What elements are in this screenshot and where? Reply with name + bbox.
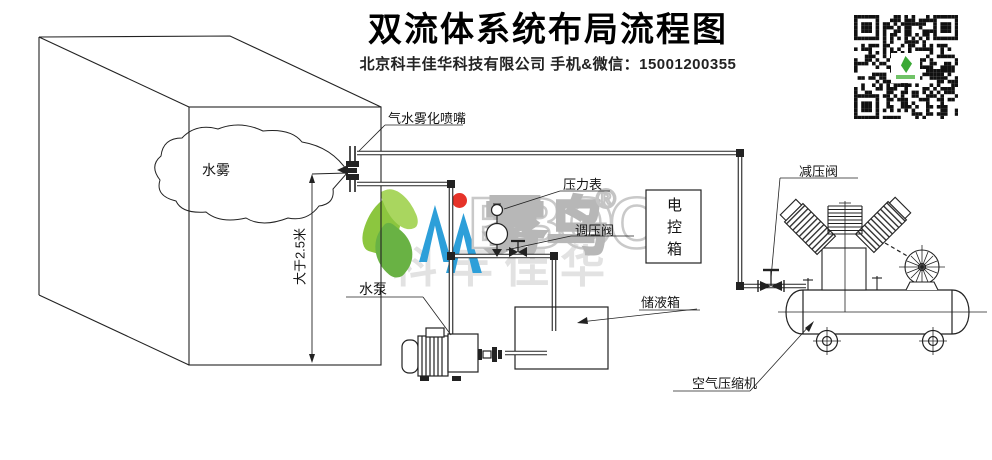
label-nozzle: 气水雾化喷嘴 <box>388 108 466 127</box>
qr-code <box>852 13 960 121</box>
water-pump <box>402 328 502 381</box>
dimension-line <box>309 173 347 363</box>
label-storage-tank: 储液箱 <box>641 292 680 311</box>
label-reducing-valve: 减压阀 <box>799 161 838 180</box>
label-mist: 水雾 <box>202 160 230 180</box>
spray-nozzle <box>337 146 359 192</box>
page-title: 双流体系统布局流程图 <box>318 12 778 49</box>
water-pipe <box>357 180 558 334</box>
label-air-compressor: 空气压缩机 <box>692 373 757 392</box>
room-box <box>39 36 381 365</box>
label-pressure-gauge: 压力表 <box>563 174 602 193</box>
diagram-canvas: 科丰佳华 EBOO 雾鸟 ® <box>0 0 992 460</box>
reducing-valve <box>758 270 784 292</box>
qr-logo-text <box>896 75 915 79</box>
label-mount-height: 大于2.5米 <box>290 216 309 298</box>
pressure-gauge <box>487 204 508 257</box>
title-block: 双流体系统布局流程图 北京科丰佳华科技有限公司 手机&微信：1500120035… <box>318 12 778 74</box>
label-water-pump: 水泵 <box>359 279 387 299</box>
label-regulating-valve: 调压阀 <box>575 220 614 239</box>
leaf-icon <box>899 56 912 73</box>
storage-tank <box>505 307 608 369</box>
label-control-box: 电控箱 <box>663 197 684 263</box>
company-contact: 北京科丰佳华科技有限公司 手机&微信：15001200355 <box>318 53 778 74</box>
qr-logo-icon <box>891 53 920 83</box>
